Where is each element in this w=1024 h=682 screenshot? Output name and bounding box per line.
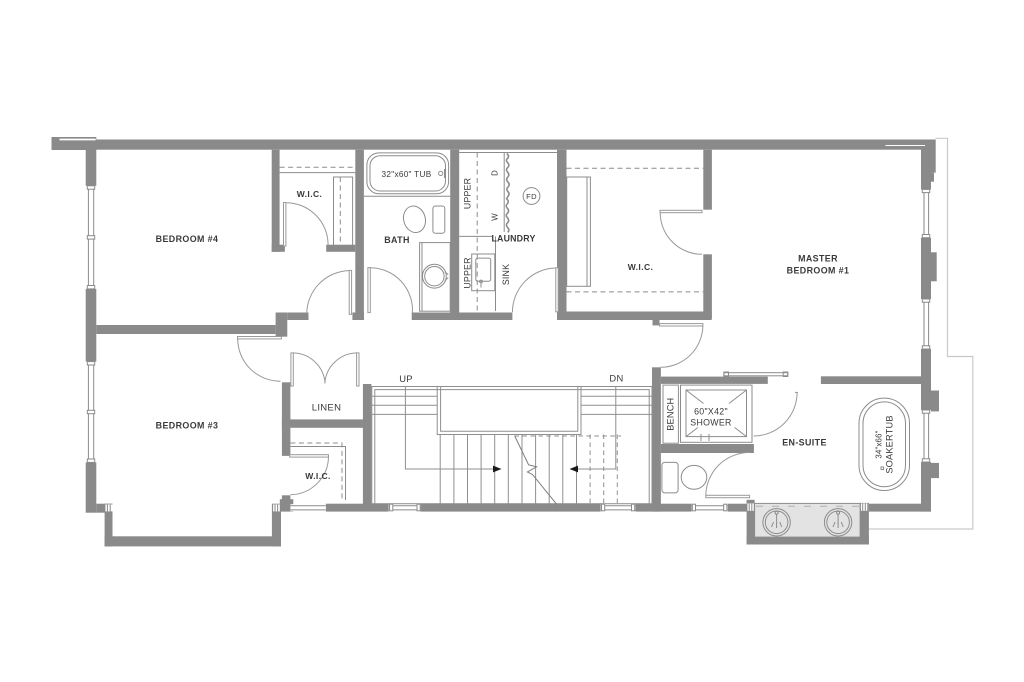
svg-text:BEDROOM #4: BEDROOM #4 bbox=[156, 234, 219, 244]
svg-text:BEDROOM #3: BEDROOM #3 bbox=[156, 421, 219, 431]
svg-text:LAUNDRY: LAUNDRY bbox=[491, 233, 535, 243]
svg-text:DN: DN bbox=[609, 373, 623, 384]
svg-text:MASTER: MASTER bbox=[798, 254, 838, 264]
svg-text:EN-SUITE: EN-SUITE bbox=[782, 437, 827, 447]
svg-text:BATH: BATH bbox=[384, 235, 410, 245]
svg-text:UP: UP bbox=[399, 373, 413, 384]
svg-text:W.I.C.: W.I.C. bbox=[305, 471, 331, 481]
svg-text:FD: FD bbox=[526, 192, 537, 201]
svg-text:60"X42": 60"X42" bbox=[694, 407, 728, 417]
svg-text:LINEN: LINEN bbox=[312, 402, 341, 413]
svg-text:W.I.C.: W.I.C. bbox=[628, 262, 654, 272]
svg-text:SHOWER: SHOWER bbox=[690, 418, 731, 428]
svg-text:SOAKERTUB: SOAKERTUB bbox=[885, 415, 895, 473]
svg-text:BEDROOM #1: BEDROOM #1 bbox=[787, 266, 850, 276]
svg-text:W: W bbox=[490, 213, 499, 221]
svg-text:34"x66": 34"x66" bbox=[875, 430, 884, 458]
svg-text:SINK: SINK bbox=[501, 264, 511, 285]
svg-text:BENCH: BENCH bbox=[666, 398, 676, 431]
svg-text:UPPER: UPPER bbox=[463, 257, 473, 288]
svg-text:D: D bbox=[490, 170, 499, 176]
svg-text:UPPER: UPPER bbox=[463, 178, 473, 209]
svg-text:W.I.C.: W.I.C. bbox=[297, 189, 323, 199]
svg-text:32"x60" TUB: 32"x60" TUB bbox=[382, 170, 432, 179]
